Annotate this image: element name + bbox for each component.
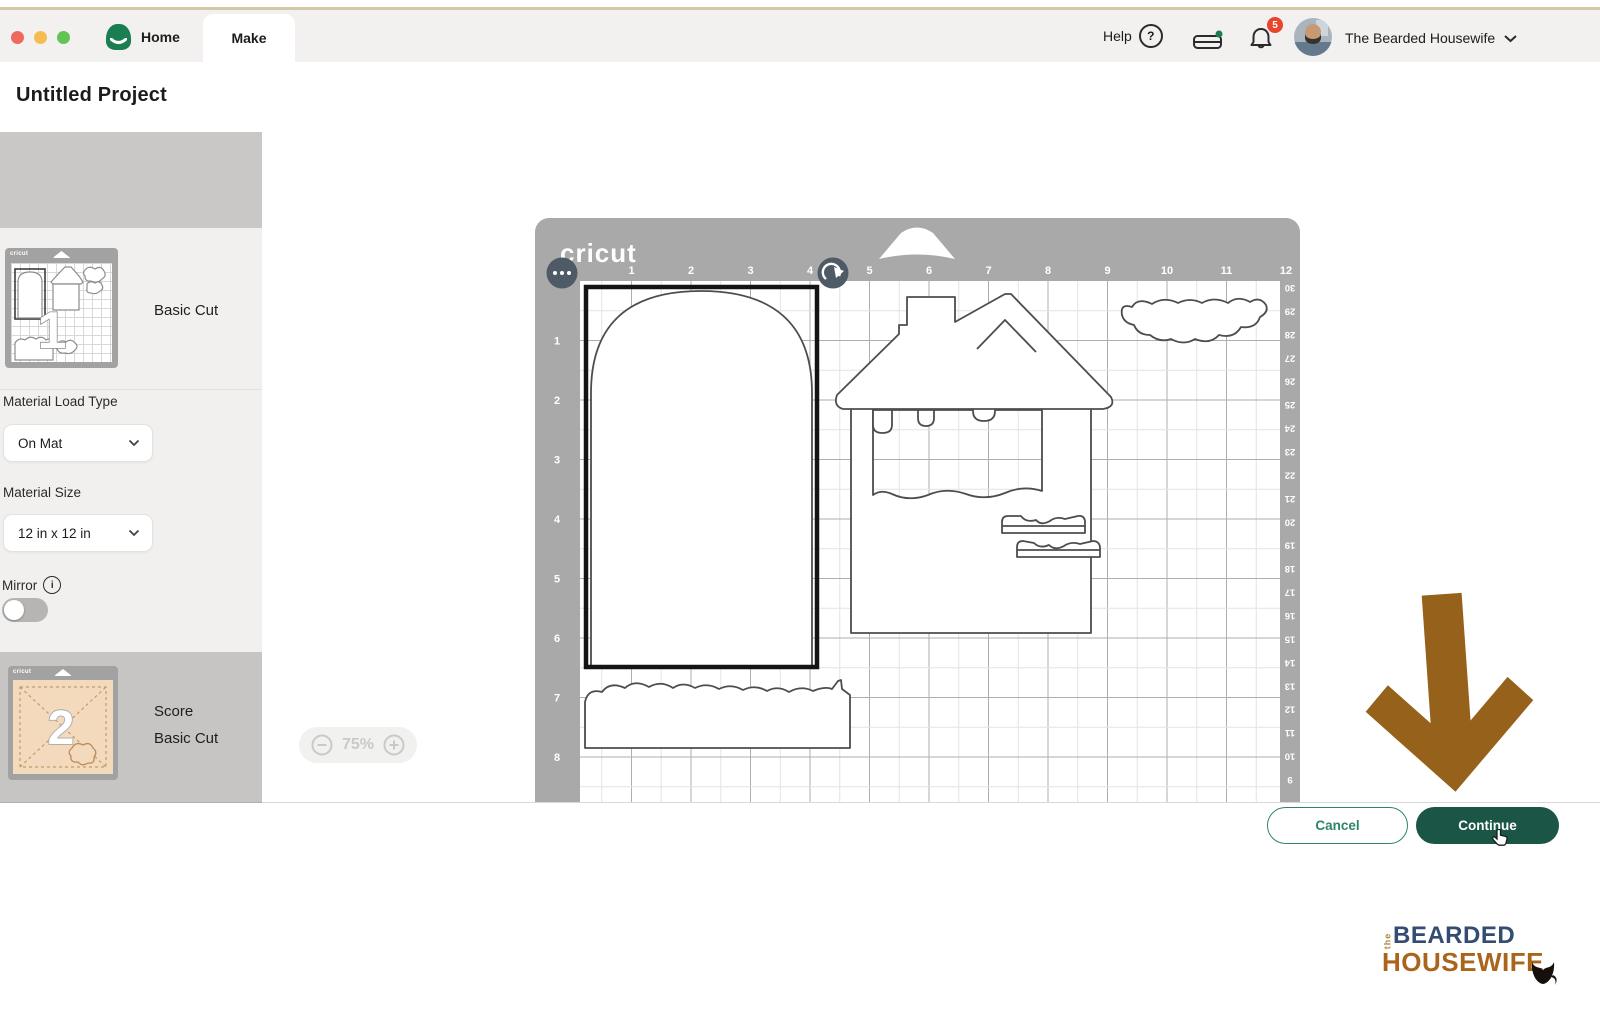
- avatar[interactable]: [1294, 18, 1332, 56]
- mirror-toggle-knob: [4, 600, 24, 620]
- mirror-label: Mirror: [2, 578, 37, 593]
- svg-text:2: 2: [688, 265, 694, 277]
- continue-button[interactable]: Continue: [1416, 807, 1559, 844]
- chevron-down-icon: [128, 529, 140, 537]
- zoom-control[interactable]: 75%: [299, 727, 417, 763]
- svg-text:25: 25: [1284, 399, 1295, 410]
- zoom-out-icon[interactable]: [311, 734, 333, 756]
- svg-text:1: 1: [628, 265, 634, 277]
- svg-text:28: 28: [1285, 329, 1296, 340]
- material-load-type-select[interactable]: On Mat: [3, 424, 153, 462]
- help-question-icon: ?: [1139, 24, 1163, 48]
- info-icon[interactable]: i: [43, 576, 61, 594]
- svg-text:9: 9: [1104, 265, 1110, 277]
- svg-text:7: 7: [985, 265, 991, 277]
- cutting-mat: cricut 123456789101112123456783029282726…: [535, 218, 1300, 802]
- svg-text:12: 12: [1285, 704, 1296, 715]
- page-title: Untitled Project: [16, 84, 167, 107]
- notifications-button[interactable]: 5: [1248, 24, 1274, 56]
- window-close-button[interactable]: [11, 31, 24, 44]
- svg-text:23: 23: [1285, 446, 1296, 457]
- material-size-label: Material Size: [3, 485, 81, 500]
- svg-text:12: 12: [1280, 265, 1292, 277]
- tutorial-arrow-down: [1355, 585, 1545, 805]
- svg-text:2: 2: [554, 395, 560, 407]
- mat2-thumbnail[interactable]: cricut 2: [8, 666, 118, 780]
- mat2-number: 2: [48, 702, 75, 755]
- mat-more-button[interactable]: [547, 258, 578, 289]
- cancel-button[interactable]: Cancel: [1267, 807, 1408, 844]
- svg-text:6: 6: [554, 633, 560, 645]
- tab-home[interactable]: Home: [106, 24, 180, 50]
- svg-text:16: 16: [1285, 610, 1296, 621]
- mirror-row: Mirror i: [2, 576, 61, 594]
- mat-rotate-button[interactable]: [818, 258, 849, 289]
- account-menu[interactable]: The Bearded Housewife: [1345, 30, 1518, 46]
- mat1-number: 1: [38, 302, 67, 360]
- arch-shape: [591, 291, 812, 667]
- svg-text:17: 17: [1285, 587, 1296, 598]
- svg-text:3: 3: [747, 265, 753, 277]
- chevron-down-icon: [1503, 34, 1518, 43]
- svg-text:11: 11: [1284, 727, 1295, 738]
- machine-status-button[interactable]: [1192, 27, 1226, 58]
- make-tab-label: Make: [231, 30, 266, 46]
- mat1-label[interactable]: Basic Cut: [154, 302, 218, 319]
- help-button[interactable]: Help ?: [1103, 24, 1163, 48]
- cancel-label: Cancel: [1315, 818, 1359, 833]
- svg-text:5: 5: [554, 574, 560, 586]
- material-size-value: 12 in x 12 in: [18, 526, 128, 541]
- svg-text:8: 8: [1045, 265, 1051, 277]
- zoom-in-icon[interactable]: [383, 734, 405, 756]
- machine-icon: [1192, 27, 1226, 53]
- chevron-down-icon: [128, 439, 140, 447]
- project-copies-panel: [0, 132, 262, 229]
- svg-text:19: 19: [1285, 540, 1296, 551]
- svg-text:22: 22: [1285, 469, 1296, 480]
- svg-text:15: 15: [1284, 633, 1295, 644]
- window-zoom-button[interactable]: [57, 31, 70, 44]
- svg-text:4: 4: [554, 514, 561, 526]
- svg-text:10: 10: [1161, 265, 1173, 277]
- svg-text:7: 7: [554, 693, 560, 705]
- svg-text:13: 13: [1285, 680, 1296, 691]
- svg-text:14: 14: [1284, 657, 1295, 668]
- notification-badge: 5: [1267, 17, 1283, 33]
- tab-make[interactable]: Make: [203, 14, 295, 62]
- hand-cursor-icon: [1490, 829, 1510, 850]
- svg-text:21: 21: [1284, 493, 1295, 504]
- snow-drip: [873, 410, 892, 433]
- snow-drip: [918, 410, 934, 426]
- svg-text:20: 20: [1285, 516, 1296, 527]
- mat1-thumbnail[interactable]: cricut 1: [5, 248, 118, 368]
- svg-text:27: 27: [1285, 352, 1296, 363]
- mat2-label-line2: Basic Cut: [154, 730, 218, 747]
- svg-text:11: 11: [1221, 265, 1233, 277]
- account-name: The Bearded Housewife: [1345, 30, 1495, 46]
- bearded-housewife-watermark: the BEARDED HOUSEWIFE: [1380, 920, 1565, 990]
- window-minimize-button[interactable]: [34, 31, 47, 44]
- material-size-select[interactable]: 12 in x 12 in: [3, 514, 153, 552]
- material-load-type-label: Material Load Type: [3, 394, 118, 409]
- svg-text:10: 10: [1285, 751, 1296, 762]
- svg-text:9: 9: [1287, 774, 1292, 785]
- svg-text:29: 29: [1285, 305, 1296, 316]
- svg-text:1: 1: [554, 336, 560, 348]
- svg-text:8: 8: [554, 752, 560, 764]
- svg-text:24: 24: [1284, 423, 1295, 434]
- snow-bank-shape: [585, 680, 850, 748]
- mirror-toggle[interactable]: [2, 598, 48, 622]
- svg-text:5: 5: [866, 265, 872, 277]
- watermark-line1: BEARDED: [1393, 922, 1515, 950]
- svg-text:6: 6: [926, 265, 932, 277]
- svg-text:26: 26: [1285, 376, 1296, 387]
- svg-text:30: 30: [1285, 282, 1296, 293]
- divider: [0, 389, 262, 390]
- svg-text:4: 4: [807, 265, 814, 277]
- cricut-logo-icon: [106, 24, 131, 50]
- svg-text:3: 3: [554, 455, 560, 467]
- home-tab-label: Home: [141, 29, 180, 45]
- watermark-line2: HOUSEWIFE: [1382, 947, 1544, 978]
- title-row: [0, 62, 1600, 132]
- svg-text:18: 18: [1285, 563, 1296, 574]
- mat2-label-line1: Score: [154, 703, 193, 720]
- material-load-type-value: On Mat: [18, 436, 128, 451]
- zoom-level: 75%: [342, 736, 374, 754]
- beard-icon: [1528, 960, 1558, 988]
- help-label: Help: [1103, 28, 1132, 44]
